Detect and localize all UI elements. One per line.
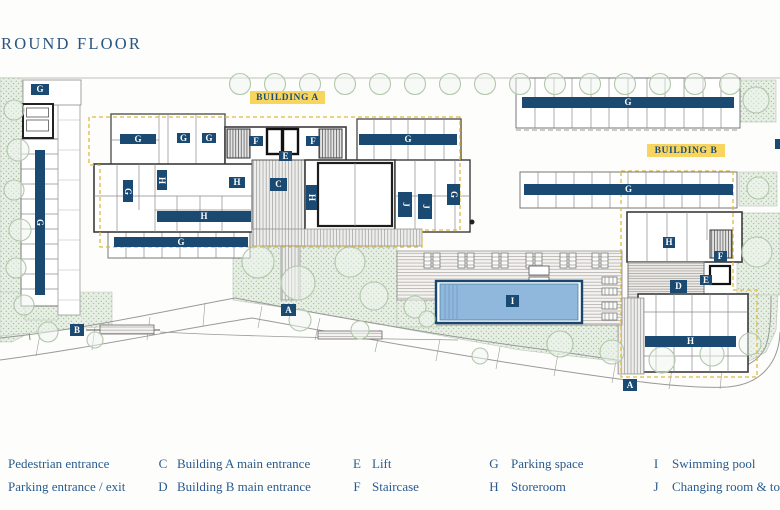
legend-label: Building A main entrance xyxy=(177,456,310,472)
plan-label-f-5: F xyxy=(249,136,263,146)
legend-key: F xyxy=(349,479,365,495)
plan-label-g-0: G xyxy=(31,84,49,95)
plan-label-h-21: H xyxy=(663,237,675,248)
plan-label-g-1: G xyxy=(35,150,45,295)
legend: Pedestrian entrance Parking entrance / e… xyxy=(0,452,780,510)
plan-label-h-10: H xyxy=(157,170,167,190)
plan-label-j-16: J xyxy=(418,194,432,219)
plan-label-a-26: A xyxy=(623,379,637,391)
legend-key: D xyxy=(155,479,171,495)
legend-label: Pedestrian entrance xyxy=(8,456,109,472)
page-title: ROUND FLOOR xyxy=(1,34,142,54)
legend-label: Parking entrance / exit xyxy=(8,479,125,495)
plan-label-f-6: F xyxy=(306,136,320,146)
legend-label: Lift xyxy=(372,456,392,472)
plan-label-h-25: H xyxy=(645,336,736,347)
plan-label-g-14: G xyxy=(359,134,457,145)
legend-label: Storeroom xyxy=(511,479,566,495)
plan-label-g-3: G xyxy=(177,133,190,143)
plan-label-b-28: B xyxy=(70,324,84,336)
legend-label: Staircase xyxy=(372,479,419,495)
plan-label-c-8: C xyxy=(270,178,287,191)
legend-label: Swimming pool xyxy=(672,456,755,472)
plan-label-h-13: H xyxy=(157,211,251,222)
plan-label-e-23: E xyxy=(700,275,712,285)
plan-label-g-19: G xyxy=(524,184,733,195)
plan-label-d-24: D xyxy=(670,280,687,293)
legend-label: Changing room & toilets xyxy=(672,479,780,495)
plan-label-h-12: H xyxy=(306,185,317,210)
legend-key: C xyxy=(155,456,171,472)
plan-label-g-17: G xyxy=(447,184,460,205)
plan-label-j-15: J xyxy=(398,192,412,217)
building-a-label: BUILDING A xyxy=(250,91,325,104)
plan-label-h-11: H xyxy=(229,177,245,188)
plan-label-a-27: A xyxy=(281,304,296,316)
legend-key: E xyxy=(349,456,365,472)
plan-label-g-20: G xyxy=(114,237,248,247)
legend-label: Building B main entrance xyxy=(177,479,311,495)
plan-label-g-18: G xyxy=(522,97,734,108)
plan-label-g-4: G xyxy=(202,133,216,143)
plan-label-e-7: E xyxy=(279,151,292,161)
plan-markers: GGGGGFFECGHHHHGJJGGGGHFEDHAABI xyxy=(0,0,780,510)
legend-label: Parking space xyxy=(511,456,584,472)
plan-label-g-2: G xyxy=(120,134,156,144)
plan-label-f-22: F xyxy=(714,251,727,262)
legend-key: I xyxy=(648,456,664,472)
legend-key: H xyxy=(486,479,502,495)
legend-key: J xyxy=(648,479,664,495)
legend-key: G xyxy=(486,456,502,472)
plan-label-g-9: G xyxy=(123,180,133,202)
building-b-label: BUILDING B xyxy=(647,144,725,157)
plan-label-i-29: I xyxy=(506,295,519,307)
